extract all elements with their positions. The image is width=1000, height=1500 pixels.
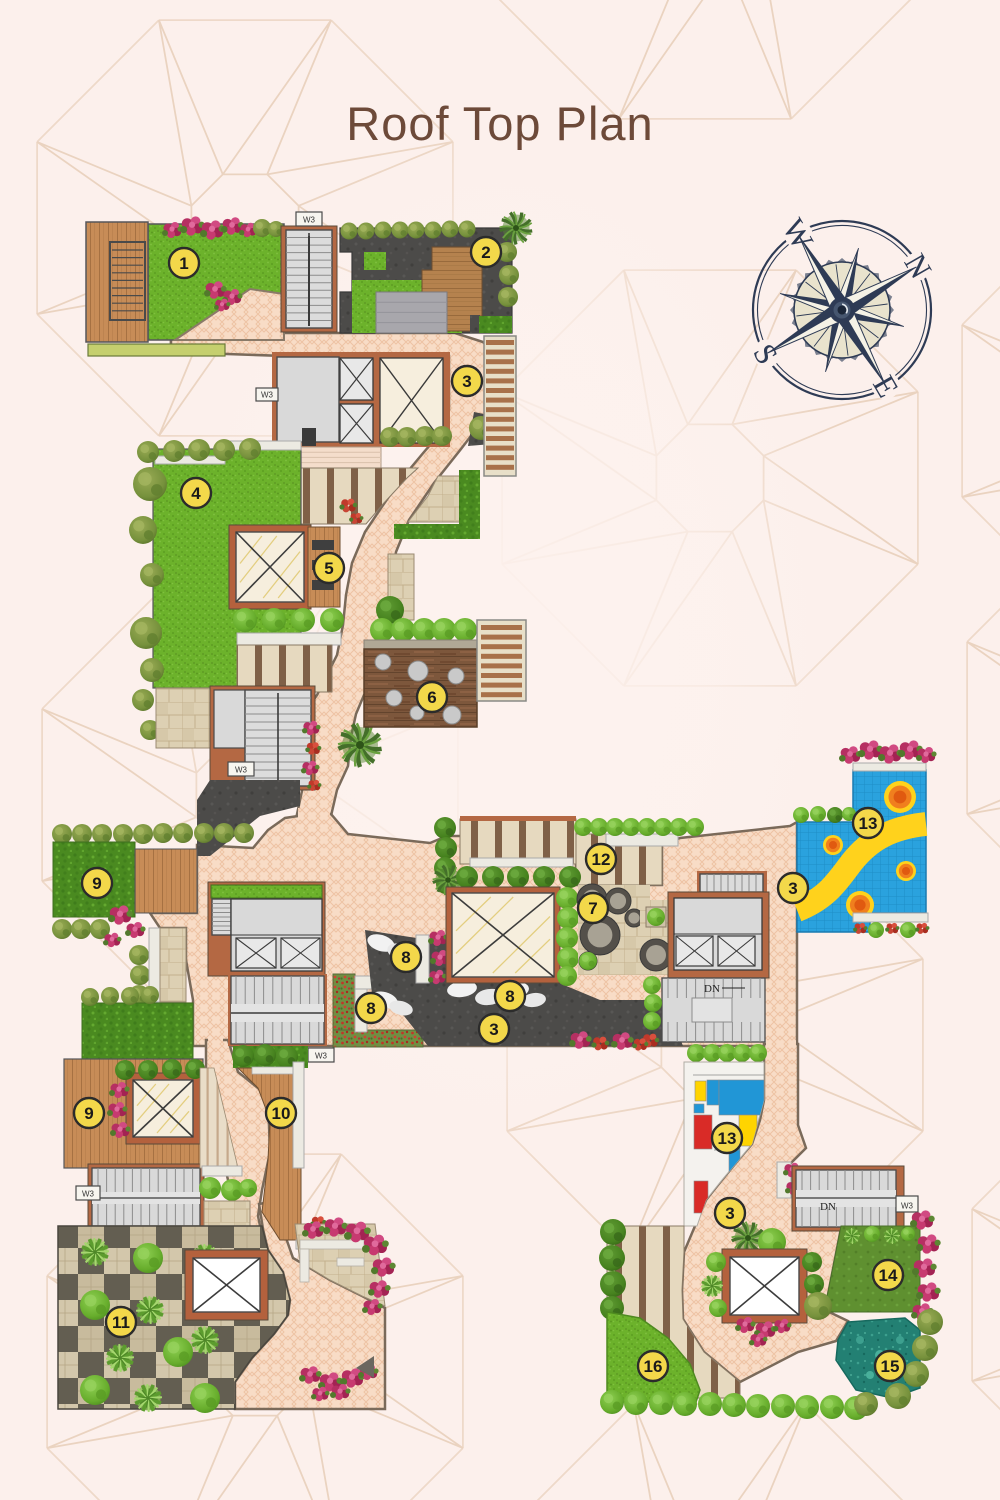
svg-text:15: 15 bbox=[881, 1357, 900, 1376]
svg-text:W3: W3 bbox=[303, 216, 316, 225]
svg-text:W3: W3 bbox=[901, 1202, 914, 1211]
svg-text:13: 13 bbox=[859, 814, 878, 833]
svg-text:3: 3 bbox=[462, 372, 471, 391]
svg-text:3: 3 bbox=[725, 1204, 734, 1223]
svg-text:8: 8 bbox=[366, 999, 375, 1018]
svg-text:8: 8 bbox=[401, 948, 410, 967]
svg-text:W3: W3 bbox=[82, 1190, 95, 1199]
svg-text:5: 5 bbox=[324, 559, 333, 578]
svg-text:Roof Top Plan: Roof Top Plan bbox=[346, 97, 653, 150]
svg-text:7: 7 bbox=[588, 899, 597, 918]
svg-text:DN: DN bbox=[820, 1201, 836, 1213]
svg-text:3: 3 bbox=[788, 879, 797, 898]
svg-text:9: 9 bbox=[84, 1104, 93, 1123]
svg-text:11: 11 bbox=[112, 1313, 130, 1332]
svg-text:W3: W3 bbox=[315, 1052, 328, 1061]
svg-text:W3: W3 bbox=[235, 766, 248, 775]
svg-text:3: 3 bbox=[489, 1020, 498, 1039]
svg-text:W3: W3 bbox=[261, 391, 274, 400]
svg-text:9: 9 bbox=[92, 874, 101, 893]
svg-text:DN: DN bbox=[704, 983, 720, 995]
svg-text:8: 8 bbox=[505, 987, 514, 1006]
svg-text:6: 6 bbox=[427, 688, 436, 707]
svg-text:10: 10 bbox=[272, 1104, 291, 1123]
svg-text:16: 16 bbox=[644, 1357, 663, 1376]
svg-text:2: 2 bbox=[481, 243, 490, 262]
svg-text:13: 13 bbox=[718, 1129, 737, 1148]
svg-text:14: 14 bbox=[879, 1266, 898, 1285]
svg-text:12: 12 bbox=[592, 850, 611, 869]
svg-text:1: 1 bbox=[179, 254, 188, 273]
svg-text:4: 4 bbox=[191, 484, 201, 503]
